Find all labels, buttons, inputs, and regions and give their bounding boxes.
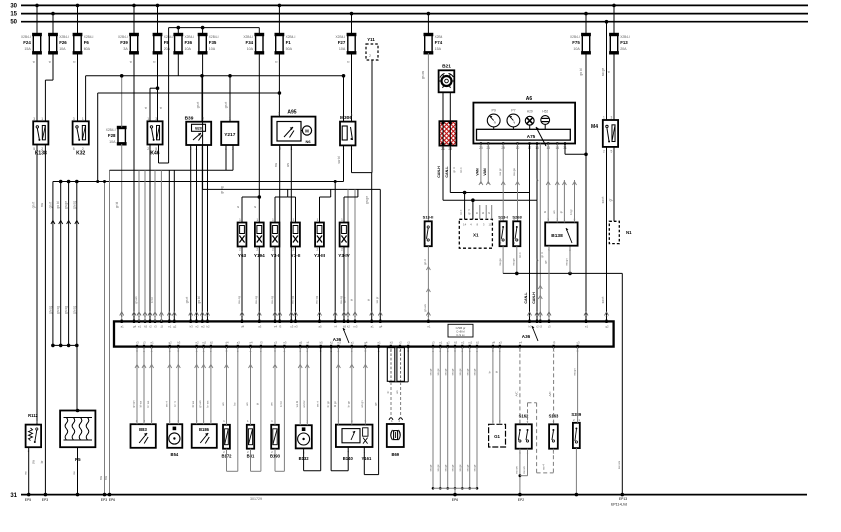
svg-text:bl gr: bl gr: [569, 209, 573, 215]
svg-text:X2B4-I: X2B4-I: [209, 35, 219, 39]
svg-text:15: 15: [10, 12, 17, 18]
svg-text:rt: rt: [129, 61, 133, 63]
svg-text:bl: bl: [543, 211, 547, 214]
svg-text:S13-II: S13-II: [423, 215, 434, 220]
svg-text:F27: F27: [338, 40, 346, 45]
svg-text:gr: gr: [535, 179, 539, 182]
svg-text:sw ge: sw ge: [459, 368, 462, 375]
svg-text:bl: bl: [495, 371, 499, 374]
svg-text:sw og: sw og: [339, 296, 343, 304]
svg-text:h3: h3: [528, 325, 532, 329]
svg-text:B: B: [529, 314, 531, 318]
svg-text:gn og: gn og: [48, 306, 52, 314]
svg-text:11: 11: [489, 223, 492, 227]
svg-text:gn rt: gn rt: [32, 202, 36, 208]
svg-text:Y11: Y11: [367, 37, 375, 42]
svg-text:sw ws: sw ws: [617, 460, 621, 469]
svg-text:F75: F75: [572, 40, 580, 45]
svg-text:sw gn: sw gn: [572, 368, 576, 376]
svg-text:R5: R5: [75, 457, 81, 462]
svg-text:10A: 10A: [209, 47, 216, 51]
svg-text:F1: F1: [286, 40, 292, 45]
svg-text:60A: 60A: [84, 47, 91, 51]
svg-text:m2: m2: [201, 325, 205, 329]
svg-text:c3: c3: [290, 325, 293, 329]
svg-text:2: 2: [603, 149, 605, 153]
svg-text:2: 2: [341, 248, 343, 252]
svg-text:sw ge: sw ge: [444, 464, 447, 471]
svg-text:j3: j3: [160, 325, 164, 329]
svg-text:g4: g4: [133, 325, 137, 329]
svg-text:X2B4-I: X2B4-I: [286, 35, 296, 39]
svg-text:Y161: Y161: [362, 456, 372, 461]
svg-text:A: A: [347, 314, 349, 318]
svg-text:m2: m2: [468, 341, 472, 345]
svg-text:sw: sw: [32, 459, 36, 464]
svg-text:2: 2: [239, 248, 241, 252]
svg-text:B: B: [343, 314, 345, 318]
svg-text:A/C: A/C: [548, 391, 552, 397]
svg-text:gn bl: gn bl: [197, 296, 201, 303]
svg-text:10A: 10A: [573, 47, 580, 51]
svg-text:sw bl: sw bl: [337, 156, 341, 164]
svg-text:sw og: sw og: [291, 296, 295, 304]
svg-text:sw ge: sw ge: [466, 464, 469, 471]
svg-text:H52: H52: [542, 110, 548, 114]
svg-text:gn ws: gn ws: [134, 296, 138, 304]
svg-text:1: 1: [278, 112, 280, 116]
svg-text:EP6: EP6: [109, 498, 116, 502]
svg-text:j3: j3: [431, 341, 435, 345]
svg-text:gn rt: gn rt: [343, 297, 347, 303]
svg-text:e4: e4: [249, 341, 253, 345]
svg-text:bl rt: bl rt: [459, 167, 463, 172]
svg-text:gr: gr: [535, 259, 539, 262]
svg-text:ws: ws: [270, 402, 274, 406]
svg-text:3: 3: [33, 117, 35, 121]
svg-text:B54: B54: [171, 452, 179, 457]
svg-text:e1: e1: [378, 341, 382, 345]
svg-text:M: M: [305, 129, 309, 134]
svg-text:ws: ws: [395, 390, 399, 394]
svg-text:1: 1: [317, 218, 319, 222]
svg-text:X2B4-I: X2B4-I: [336, 35, 346, 39]
svg-text:B: B: [548, 314, 550, 318]
svg-text:g2: g2: [605, 325, 609, 329]
svg-text:1: 1: [293, 218, 295, 222]
svg-text:A36: A36: [522, 334, 531, 339]
svg-text:e2: e2: [195, 325, 199, 329]
svg-text:gn ge: gn ge: [64, 201, 68, 209]
svg-text:X2B4-I: X2B4-I: [106, 128, 116, 132]
svg-text:gn ws: gn ws: [421, 70, 425, 79]
svg-text:1: 1: [82, 117, 84, 121]
svg-text:VAN: VAN: [476, 168, 480, 176]
svg-text:a3: a3: [499, 341, 503, 345]
svg-text:R112: R112: [28, 413, 38, 418]
svg-text:k2: k2: [347, 325, 350, 329]
svg-text:B186: B186: [199, 427, 210, 432]
svg-text:sw ge: sw ge: [430, 368, 433, 375]
svg-text:br gn: br gn: [326, 400, 330, 407]
svg-text:bl: bl: [256, 403, 260, 406]
svg-text:F74: F74: [435, 40, 443, 45]
svg-text:X2B4-I: X2B4-I: [620, 35, 630, 39]
svg-text:1: 1: [256, 218, 258, 222]
svg-text:sw ge: sw ge: [459, 464, 462, 471]
svg-text:20A: 20A: [620, 47, 627, 51]
svg-text:EP5: EP5: [25, 498, 32, 502]
svg-text:bl: bl: [481, 212, 485, 215]
svg-text:gn og: gn og: [56, 306, 60, 314]
svg-text:e2: e2: [196, 341, 200, 345]
svg-text:sw gn: sw gn: [565, 258, 569, 266]
svg-text:m3: m3: [354, 325, 358, 329]
svg-text:a1: a1: [351, 341, 355, 345]
svg-text:B83: B83: [139, 427, 147, 432]
svg-text:e3: e3: [283, 341, 287, 345]
svg-text:sw ge: sw ge: [466, 368, 469, 375]
svg-text:gn og: gn og: [72, 201, 76, 209]
svg-text:b5: b5: [320, 341, 324, 345]
svg-text:H29: H29: [527, 110, 533, 114]
svg-text:X2B4-I: X2B4-I: [570, 35, 580, 39]
svg-text:sw gr: sw gr: [375, 297, 379, 304]
svg-text:gn rt: gn rt: [423, 259, 427, 265]
svg-text:M4: M4: [591, 124, 598, 130]
svg-text:e1: e1: [168, 325, 172, 329]
svg-text:rt: rt: [48, 61, 52, 63]
svg-text:A: A: [149, 314, 151, 318]
svg-text:1: 1: [603, 115, 605, 119]
svg-text:B69: B69: [391, 452, 399, 457]
svg-text:A: A: [379, 314, 381, 318]
svg-text:EP13: EP13: [619, 497, 627, 501]
svg-text:rt: rt: [73, 61, 77, 63]
svg-text:sw ge: sw ge: [430, 464, 433, 471]
svg-text:1: 1: [147, 117, 149, 121]
svg-text:ws: ws: [286, 163, 290, 167]
svg-text:sw: sw: [40, 202, 44, 207]
svg-text:B: B: [295, 314, 297, 318]
svg-text:gn ge: gn ge: [365, 196, 369, 204]
svg-text:sw ge: sw ge: [452, 368, 455, 375]
svg-text:gr rt: gr rt: [452, 167, 456, 173]
svg-text:h3: h3: [390, 341, 394, 345]
svg-text:EP11+Lhd: EP11+Lhd: [611, 503, 627, 507]
svg-text:ws gn: ws gn: [360, 400, 364, 408]
svg-text:bl: bl: [350, 299, 354, 302]
svg-text:bl rt: bl rt: [459, 209, 463, 214]
svg-text:gn bl: gn bl: [56, 201, 60, 208]
svg-text:b2: b2: [476, 341, 480, 345]
svg-text:ws rt: ws rt: [315, 401, 319, 407]
svg-text:br ws: br ws: [206, 400, 210, 407]
svg-text:P9: P9: [491, 109, 495, 113]
svg-text:A: A: [168, 314, 170, 318]
svg-text:sw ws: sw ws: [515, 466, 519, 474]
svg-text:a5: a5: [318, 325, 322, 329]
svg-text:C-S sv: C-S sv: [456, 333, 465, 337]
svg-text:A: A: [241, 314, 243, 318]
svg-text:A: A: [354, 314, 356, 318]
svg-text:31: 31: [10, 493, 17, 499]
svg-text:bl: bl: [366, 299, 370, 302]
svg-text:2i: 2i: [253, 206, 257, 209]
svg-text:g2: g2: [169, 341, 173, 345]
svg-text:S389: S389: [571, 412, 581, 417]
svg-text:K32: K32: [76, 151, 85, 157]
svg-text:3: 3: [351, 113, 353, 117]
svg-text:F39: F39: [120, 40, 128, 45]
svg-text:A: A: [428, 314, 430, 318]
svg-text:B: B: [475, 212, 479, 214]
svg-text:10A: 10A: [109, 140, 116, 144]
svg-text:br bl: br bl: [150, 297, 154, 303]
svg-text:sw og: sw og: [315, 296, 319, 304]
svg-text:gn bl: gn bl: [579, 68, 583, 75]
svg-text:a1: a1: [371, 325, 375, 329]
svg-text:sw ge: sw ge: [444, 368, 447, 375]
svg-text:X2B4-I: X2B4-I: [118, 35, 128, 39]
svg-text:n: n: [494, 120, 496, 124]
svg-text:gn og: gn og: [72, 306, 76, 314]
svg-text:gn gn: gn gn: [132, 400, 136, 407]
svg-text:j3: j3: [547, 325, 551, 329]
svg-text:a5: a5: [299, 341, 303, 345]
svg-text:gn ws: gn ws: [423, 304, 427, 312]
svg-text:15A: 15A: [435, 47, 442, 51]
svg-text:F34: F34: [246, 40, 254, 45]
svg-text:A: A: [258, 314, 260, 318]
svg-text:sw ge: sw ge: [452, 464, 455, 471]
svg-text:e2: e2: [461, 341, 465, 345]
svg-text:gn rt: gn rt: [224, 102, 228, 108]
svg-text:sw og: sw og: [237, 296, 241, 304]
svg-text:F26: F26: [59, 40, 67, 45]
svg-text:e3: e3: [294, 325, 298, 329]
svg-text:ws: ws: [245, 402, 249, 406]
svg-text:A: A: [536, 314, 538, 318]
svg-text:ws rt: ws rt: [164, 401, 168, 407]
svg-text:sw og: sw og: [254, 296, 258, 304]
svg-text:h3: h3: [177, 341, 181, 345]
svg-text:sw ge: sw ge: [474, 368, 477, 375]
svg-text:d4: d4: [241, 325, 245, 329]
svg-text:EP3: EP3: [101, 498, 108, 502]
svg-text:1: 1: [41, 117, 43, 121]
svg-text:rt: rt: [607, 71, 611, 73]
svg-text:A: A: [606, 314, 608, 318]
svg-text:10A: 10A: [339, 47, 346, 51]
svg-text:b5: b5: [343, 325, 347, 329]
svg-text:X2B4-I: X2B4-I: [59, 35, 69, 39]
svg-text:A: A: [290, 314, 292, 318]
svg-text:a3: a3: [258, 325, 262, 329]
svg-text:ge: ge: [373, 402, 377, 406]
svg-text:rt: rt: [159, 107, 163, 109]
svg-text:gn rt: gn rt: [48, 202, 52, 208]
svg-text:2i: 2i: [236, 206, 240, 209]
svg-text:X1: X1: [473, 233, 479, 238]
svg-text:e4: e4: [519, 341, 523, 345]
svg-text:A: A: [334, 314, 336, 318]
svg-text:sw: sw: [104, 475, 108, 480]
svg-text:CAN-H: CAN-H: [532, 292, 536, 304]
svg-text:sw ge: sw ge: [437, 464, 440, 471]
svg-text:c3: c3: [274, 341, 277, 345]
svg-text:gn rt: gn rt: [185, 297, 189, 303]
svg-text:c3: c3: [577, 341, 580, 345]
svg-text:1: 1: [341, 218, 343, 222]
svg-text:h3: h3: [144, 325, 148, 329]
svg-text:B: B: [190, 314, 192, 318]
svg-text:VAN: VAN: [483, 168, 487, 176]
svg-text:br: br: [386, 391, 390, 394]
svg-text:gn og: gn og: [64, 306, 68, 314]
svg-text:sw rt: sw rt: [601, 297, 605, 304]
svg-text:2: 2: [293, 248, 295, 252]
svg-text:gn ws: gn ws: [198, 400, 202, 408]
svg-text:X2B4: X2B4: [435, 35, 443, 39]
svg-text:br: br: [488, 371, 492, 374]
svg-text:X2B4-I: X2B4-I: [84, 35, 94, 39]
svg-text:A: A: [319, 314, 321, 318]
svg-text:20A: 20A: [164, 47, 171, 51]
svg-text:3: 3: [611, 115, 613, 119]
svg-text:15A: 15A: [24, 47, 31, 51]
svg-text:e1: e1: [151, 341, 155, 345]
svg-text:br bl: br bl: [279, 401, 283, 407]
svg-text:EP3: EP3: [42, 498, 49, 502]
svg-text:N6: N6: [305, 139, 311, 144]
svg-text:A: A: [539, 314, 541, 318]
svg-text:e1: e1: [427, 325, 431, 329]
svg-text:1: 1: [239, 218, 241, 222]
svg-text:50: 50: [10, 20, 17, 26]
svg-text:2: 2: [272, 248, 274, 252]
svg-text:sw ge: sw ge: [512, 168, 516, 176]
svg-text:G1: G1: [494, 434, 500, 439]
svg-text:30: 30: [10, 3, 17, 9]
svg-text:A: A: [196, 314, 198, 318]
svg-text:ws: ws: [552, 210, 556, 214]
svg-text:EP6: EP6: [452, 498, 459, 502]
svg-text:j3: j3: [142, 341, 146, 345]
svg-text:rt: rt: [347, 61, 351, 63]
svg-text:X2B4-I: X2B4-I: [185, 35, 195, 39]
svg-text:A: A: [585, 314, 587, 318]
svg-text:N1: N1: [626, 230, 632, 235]
svg-text:br ws: br ws: [146, 400, 150, 407]
svg-text:sw ge: sw ge: [512, 258, 516, 266]
svg-text:A: A: [279, 314, 281, 318]
svg-text:a3: a3: [237, 341, 241, 345]
svg-text:B39: B39: [185, 116, 194, 122]
svg-text:d4: d4: [492, 341, 496, 345]
svg-text:B: B: [274, 314, 276, 318]
svg-text:Y217: Y217: [224, 132, 236, 138]
svg-text:br gn: br gn: [346, 400, 350, 407]
svg-text:e1: e1: [585, 325, 589, 329]
svg-text:rt: rt: [32, 61, 36, 63]
svg-text:rt: rt: [274, 61, 278, 63]
svg-text:rt: rt: [144, 107, 148, 109]
svg-text:bl gn: bl gn: [333, 401, 337, 408]
svg-text:sw gr: sw gr: [498, 168, 502, 175]
svg-text:rt: rt: [153, 61, 157, 63]
svg-text:sw ge: sw ge: [601, 68, 605, 77]
svg-text:F35: F35: [209, 40, 217, 45]
svg-text:bl rt: bl rt: [518, 252, 522, 257]
svg-text:A/C: A/C: [515, 391, 519, 397]
svg-text:F24: F24: [23, 40, 31, 45]
svg-text:ge: ge: [544, 260, 548, 264]
svg-text:10A: 10A: [185, 47, 192, 51]
svg-text:gn rt: gn rt: [196, 102, 200, 108]
svg-text:b2: b2: [206, 325, 210, 329]
svg-text:B: B: [207, 314, 209, 318]
svg-text:50A: 50A: [286, 47, 293, 51]
svg-text:P7: P7: [511, 109, 515, 113]
svg-text:EP2: EP2: [518, 498, 525, 502]
svg-text:ws bz: ws bz: [302, 400, 306, 408]
svg-text:B: B: [121, 314, 123, 318]
svg-text:CAN-L: CAN-L: [524, 292, 528, 304]
svg-text:br rt: br rt: [173, 401, 177, 406]
svg-text:k2: k2: [330, 341, 333, 345]
svg-text:g4: g4: [364, 341, 368, 345]
svg-text:2: 2: [147, 147, 149, 151]
svg-text:B28: B28: [195, 127, 202, 131]
svg-text:sw ge: sw ge: [437, 368, 440, 375]
svg-text:h3: h3: [190, 325, 194, 329]
svg-text:301729: 301729: [250, 497, 262, 501]
svg-text:3A: 3A: [123, 47, 128, 51]
svg-text:sw: sw: [274, 162, 278, 167]
svg-text:g2: g2: [173, 325, 177, 329]
svg-text:CAN-H: CAN-H: [437, 166, 441, 178]
svg-text:h3: h3: [454, 341, 458, 345]
svg-text:10A: 10A: [59, 47, 66, 51]
svg-text:3: 3: [155, 117, 157, 121]
svg-text:X2B4-I: X2B4-I: [243, 35, 253, 39]
svg-text:e1: e1: [439, 341, 443, 345]
svg-text:CAN-L: CAN-L: [445, 166, 449, 178]
svg-text:B: B: [371, 314, 373, 318]
svg-text:sw ge: sw ge: [498, 258, 502, 266]
svg-text:sw rt: sw rt: [601, 197, 605, 204]
svg-text:B138: B138: [551, 233, 563, 239]
svg-text:1: 1: [272, 218, 274, 222]
svg-text:2: 2: [369, 54, 371, 58]
svg-text:gr rt: gr rt: [467, 209, 471, 214]
svg-text:ws: ws: [221, 402, 225, 406]
svg-text:sw: sw: [99, 475, 103, 480]
svg-text:sw og: sw og: [270, 296, 274, 304]
svg-text:2: 2: [317, 248, 319, 252]
svg-text:m2: m2: [202, 341, 206, 345]
svg-text:sw ge: sw ge: [474, 464, 477, 471]
svg-text:F36: F36: [185, 40, 193, 45]
svg-text:sw ws: sw ws: [522, 466, 526, 474]
svg-text:e4: e4: [274, 325, 278, 329]
svg-text:bl ws: bl ws: [139, 400, 143, 407]
svg-text:5: 5: [73, 147, 75, 151]
svg-text:F6: F6: [84, 40, 90, 45]
svg-text:B21: B21: [442, 64, 451, 70]
svg-text:gr bl: gr bl: [115, 202, 119, 208]
